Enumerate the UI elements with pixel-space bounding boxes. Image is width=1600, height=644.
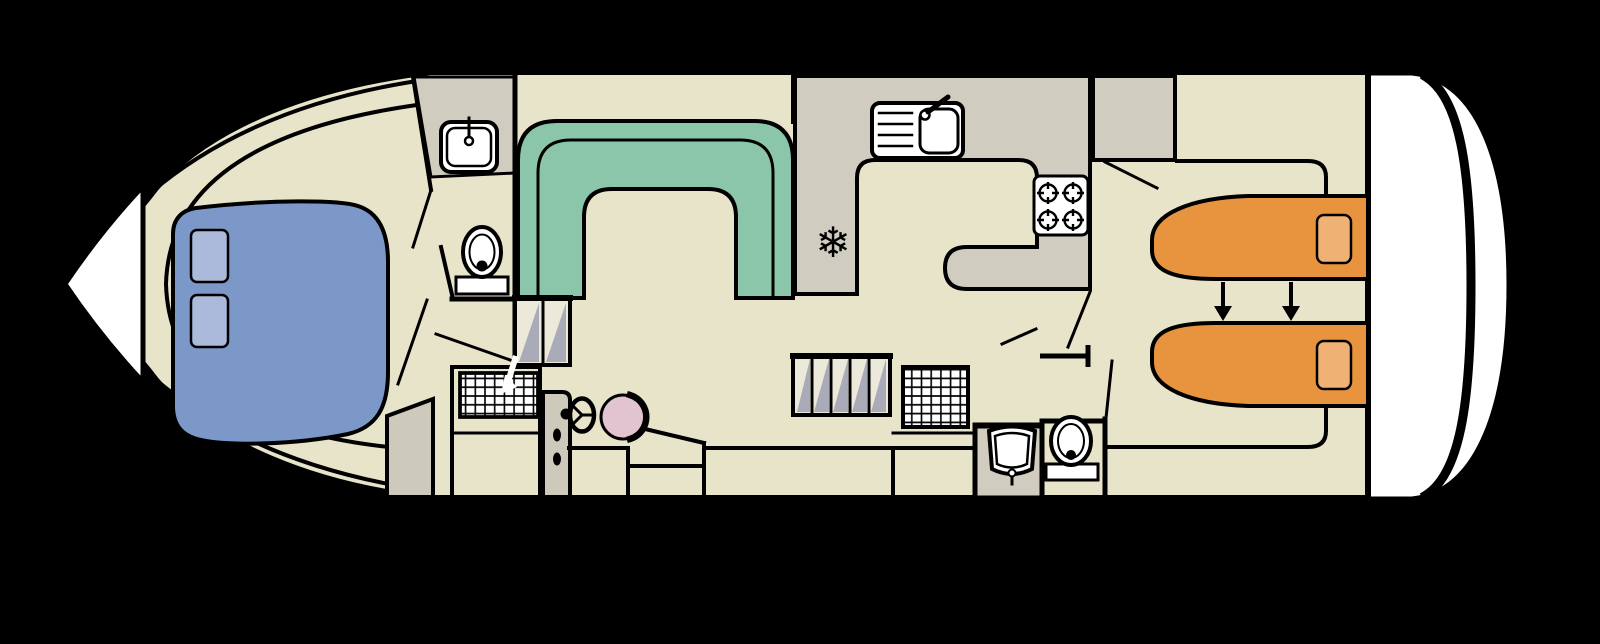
single-bed-pillow	[1317, 215, 1351, 263]
hob-icon	[1034, 176, 1088, 235]
hinge-dot	[553, 429, 561, 442]
stern-platform	[1367, 73, 1509, 499]
galley-sink-icon	[872, 97, 963, 158]
stairs-aft	[793, 355, 890, 415]
bow-companionway	[387, 399, 433, 497]
fridge-snowflake-icon: ❄	[815, 218, 850, 267]
boat-floor-plan: ❄	[0, 0, 1600, 644]
hinge-dot	[553, 453, 561, 466]
double-bed-pillow	[191, 295, 228, 347]
vent-grille-forward	[460, 373, 538, 417]
single-bed-pillow	[1317, 341, 1351, 389]
helm-door	[543, 392, 570, 497]
vent-grille-aft	[893, 367, 972, 433]
double-bed-pillow	[191, 230, 228, 282]
helm-seat	[601, 395, 646, 439]
shower-basin-icon	[441, 118, 497, 172]
stairs-forward	[515, 298, 570, 365]
wardrobe	[1093, 76, 1175, 160]
